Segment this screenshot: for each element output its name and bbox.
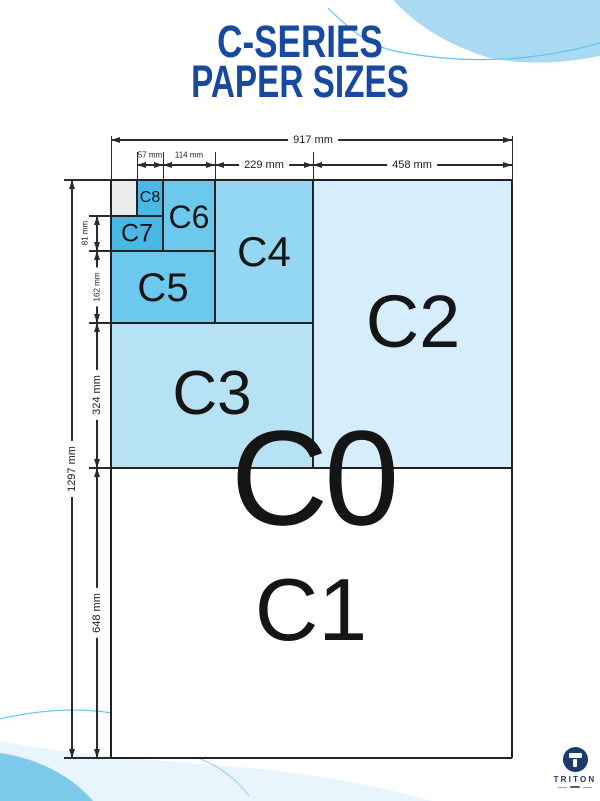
- outline-right: [511, 180, 513, 758]
- extension-line: [89, 322, 111, 323]
- triton-logo: TRITON: [553, 747, 597, 788]
- dim-width-c4: 229 mm: [239, 159, 289, 171]
- arrowhead-up: [94, 216, 100, 225]
- divider-c3-top: [111, 322, 313, 324]
- dim-width-c8: 57 mm: [138, 151, 162, 160]
- brand-name: TRITON: [553, 775, 597, 784]
- dim-height-total: 1297 mm: [66, 441, 78, 497]
- arrowhead-down: [94, 459, 100, 468]
- arrowhead-down: [94, 314, 100, 323]
- arrowhead-right: [154, 162, 163, 168]
- arrowhead-up: [94, 468, 100, 477]
- bottom-left-curve-line: [0, 710, 112, 719]
- size-label-c7: C7: [121, 222, 153, 247]
- arrowhead-left: [163, 162, 172, 168]
- arrowhead-down: [94, 242, 100, 251]
- dim-height-c5: 162 mm: [93, 268, 102, 307]
- extension-line: [89, 215, 111, 216]
- extension-line: [111, 136, 112, 180]
- size-label-c3: C3: [172, 363, 251, 425]
- arrowhead-down: [69, 749, 75, 758]
- size-label-c4: C4: [237, 231, 291, 273]
- size-label-c5: C5: [137, 268, 188, 308]
- divider-c7-top: [111, 215, 163, 217]
- dim-width-c6: 114 mm: [175, 151, 203, 160]
- dim-width-total: 917 mm: [288, 134, 338, 146]
- arrowhead-left: [313, 162, 322, 168]
- arrowhead-up: [69, 180, 75, 189]
- extension-line: [89, 467, 111, 468]
- outline-left: [110, 180, 112, 758]
- dim-width-c2: 458 mm: [387, 159, 437, 171]
- arrowhead-up: [94, 323, 100, 332]
- size-label-c6: C6: [169, 201, 210, 233]
- logo-t-bar: [569, 753, 582, 758]
- arrowhead-right: [503, 162, 512, 168]
- brand-tagline-decoration: [553, 786, 597, 788]
- arrowhead-left: [215, 162, 224, 168]
- arrowhead-right: [503, 137, 512, 143]
- size-label-c2: C2: [366, 285, 461, 359]
- arrowhead-right: [304, 162, 313, 168]
- divider-c8-left: [136, 180, 138, 216]
- arrowhead-left: [137, 162, 146, 168]
- infographic-page: C-SERIES PAPER SIZES C0 C1 C2 C3 C4 C5 C…: [0, 0, 600, 801]
- arrowhead-down: [94, 749, 100, 758]
- size-label-c8: C8: [140, 190, 160, 206]
- extension-line: [512, 136, 513, 180]
- outline-bottom: [111, 757, 512, 759]
- dim-height-c7: 81 mm: [81, 221, 90, 245]
- dim-height-c1: 648 mm: [91, 588, 103, 638]
- page-title: C-SERIES PAPER SIZES: [0, 22, 600, 102]
- extension-line: [89, 250, 111, 251]
- dim-height-c3: 324 mm: [91, 370, 103, 420]
- arrowhead-up: [94, 251, 100, 260]
- size-label-c0: C0: [231, 411, 396, 546]
- title-line-2: PAPER SIZES: [78, 62, 522, 102]
- divider-c5-top: [111, 250, 215, 252]
- triton-logo-icon: [563, 747, 588, 772]
- paper-unlabeled-remainder: [111, 180, 137, 216]
- size-label-c1: C1: [255, 566, 368, 654]
- arrowhead-right: [206, 162, 215, 168]
- dim-line-sub-widths: [137, 164, 512, 165]
- logo-t-stem: [573, 759, 578, 767]
- arrowhead-left: [111, 137, 120, 143]
